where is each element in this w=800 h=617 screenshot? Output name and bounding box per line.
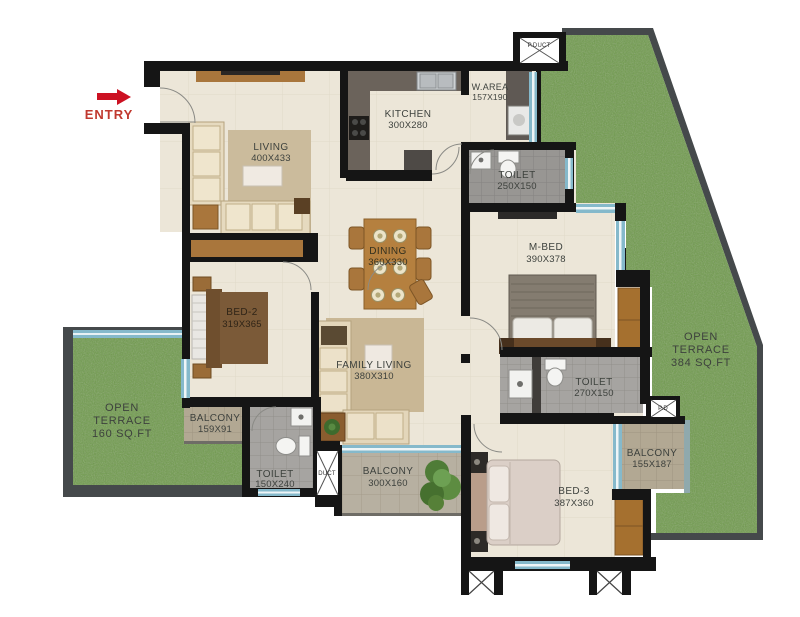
svg-text:250X150: 250X150	[497, 181, 536, 192]
svg-text:OPEN: OPEN	[684, 331, 718, 343]
svg-text:M-BED: M-BED	[529, 242, 563, 253]
svg-text:390X378: 390X378	[526, 254, 565, 265]
svg-text:319X365: 319X365	[222, 319, 261, 330]
svg-text:BALCONY: BALCONY	[363, 466, 414, 477]
svg-text:270X150: 270X150	[574, 388, 613, 399]
svg-text:BALCONY: BALCONY	[190, 413, 241, 424]
svg-text:380X310: 380X310	[354, 371, 393, 382]
svg-text:P.DUCT: P.DUCT	[528, 43, 551, 49]
svg-text:LIVING: LIVING	[253, 142, 288, 153]
svg-text:ENTRY: ENTRY	[85, 107, 134, 122]
svg-text:P.D: P.D	[658, 406, 668, 412]
svg-text:150X240: 150X240	[255, 479, 294, 490]
svg-text:155X187: 155X187	[632, 459, 671, 470]
svg-text:OPEN: OPEN	[105, 402, 139, 414]
svg-text:TERRACE: TERRACE	[93, 415, 150, 427]
svg-text:387X360: 387X360	[554, 498, 593, 509]
svg-text:BALCONY: BALCONY	[627, 448, 678, 459]
svg-text:BED-3: BED-3	[558, 486, 589, 497]
svg-text:TERRACE: TERRACE	[672, 344, 729, 356]
svg-text:360X330: 360X330	[368, 257, 407, 268]
svg-text:157X190: 157X190	[472, 92, 508, 102]
svg-text:TOILET: TOILET	[498, 170, 535, 181]
svg-text:DUCT: DUCT	[318, 471, 336, 477]
svg-text:BED-2: BED-2	[226, 307, 257, 318]
svg-text:300X280: 300X280	[388, 120, 427, 131]
svg-text:W.AREA: W.AREA	[472, 82, 509, 92]
svg-text:TOILET: TOILET	[575, 377, 612, 388]
svg-text:FAMILY LIVING: FAMILY LIVING	[336, 360, 411, 371]
svg-text:384 SQ.FT: 384 SQ.FT	[671, 357, 731, 369]
svg-text:KITCHEN: KITCHEN	[385, 109, 432, 120]
svg-text:300X160: 300X160	[368, 478, 407, 489]
svg-text:160 SQ.FT: 160 SQ.FT	[92, 428, 152, 440]
svg-text:DINING: DINING	[369, 246, 406, 257]
svg-text:400X433: 400X433	[251, 153, 290, 164]
svg-text:159X91: 159X91	[198, 424, 232, 435]
